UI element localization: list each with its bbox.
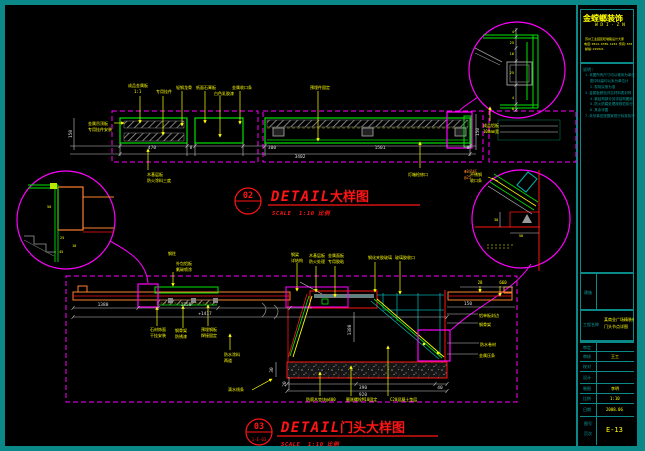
d2-label-l3-line2: 焊接固定 xyxy=(201,332,217,338)
d1-bottom-label-line1: 木基层板 xyxy=(147,171,163,177)
c2-dim-4: 45 xyxy=(59,250,63,254)
d2-dim-150: 150 xyxy=(464,301,472,307)
title-block-row-2: 审核 王工 xyxy=(580,351,634,361)
company-logo-sub: W D I · Z N xyxy=(595,23,625,28)
c1-dim-4: 25 xyxy=(510,71,514,75)
c1-label-line2: 100mm宽 xyxy=(483,128,499,134)
row-label: 设计 xyxy=(583,375,591,380)
title-block-discipline-cell: 建施 xyxy=(580,273,634,310)
d2-scale-value: 1:10 xyxy=(308,442,324,448)
row-label: 制图 xyxy=(583,386,591,391)
d2-dim-40: 40 xyxy=(437,385,443,391)
title-block-notes-box: 说明: 1.本图所有尺寸均以毫米为单位 图中标高均以米为单位计 2.现场实测为准… xyxy=(580,63,634,273)
d1-dim-1501: 1501 xyxy=(375,145,386,151)
d2-label-r1: 铝单板封边 xyxy=(479,312,499,318)
d1-scale-value: 1:10 xyxy=(299,211,315,217)
title-block-row-5: 制图 李明 xyxy=(580,383,634,393)
d2-bottom-label-1: 防腐木垫块@400 xyxy=(306,396,336,402)
note-line-3: 2.现场实测为准 xyxy=(590,85,640,90)
d2-dim-1417: +1417 xyxy=(198,311,212,317)
discipline-label: 建施 xyxy=(584,290,592,295)
d1-title-en: DETAIL xyxy=(270,189,331,205)
d1-top-label-7: 预埋件固定 xyxy=(310,84,330,90)
title-block-project-cell: 工程名称 某商业广场精装修工程 门头节点详图 xyxy=(580,310,634,341)
d1-scale-label: SCALE xyxy=(272,211,292,217)
c2-dim-1: 50 xyxy=(47,205,51,209)
d2-label-l4-line1: 防水涂料 xyxy=(224,351,240,357)
d2-label-l1-line1: 石材饰面 xyxy=(150,326,166,332)
d2-label-b-line2: 详结构 xyxy=(291,257,303,263)
d1-bottom-label-line2: 防火涂料三度 xyxy=(147,177,171,183)
row-value: 2008.06 xyxy=(606,407,623,412)
d2-label-l3-line1: 预埋钢板 xyxy=(201,326,217,332)
row-label: 比例 xyxy=(583,396,591,401)
d2-title-en: DETAIL xyxy=(280,420,341,436)
row-label: 审核 xyxy=(583,354,591,359)
title-block-row-3: 校对 xyxy=(580,361,634,371)
c2-dim-3: 10 xyxy=(72,244,76,248)
drawing-no-value: E-13 xyxy=(606,428,623,433)
d2-scale-cn: 比例 xyxy=(327,441,340,448)
d1-top-label-3: 轻钢龙骨 xyxy=(176,84,192,90)
d1-left-label-line2: 专用挂件安装 xyxy=(88,126,112,132)
row-value: 李明 xyxy=(611,386,619,391)
d2-dim-30: 30 xyxy=(269,367,275,373)
c3-dim-50: 50 xyxy=(519,234,523,238)
project-label: 工程名称 xyxy=(583,322,599,327)
d1-top-label-4: 纸面石膏板 xyxy=(196,84,216,90)
d2-label-l5: 滴水线条 xyxy=(228,386,244,392)
c3-label-line2: 收口条 xyxy=(470,177,482,183)
d2-title-cn: 门头大样图 xyxy=(340,420,405,436)
c1-label-line1: 成品铝板 xyxy=(483,122,499,128)
drawing-canvas: 成品金属板 1:1 专用挂件 轻钢龙骨 纸面石膏板 白色乳胶漆 金属收口条 预埋… xyxy=(0,0,645,451)
title-block-row-4: 设计 xyxy=(580,371,634,383)
note-line-8: 7.未尽事宜按国家现行标准执行 xyxy=(585,114,635,119)
d1-left-label-line1: 金属吊顶板 xyxy=(88,120,108,126)
title-block-divider-upper xyxy=(596,273,597,310)
title-block-logo-box: 金螳螂装饰 W D I · Z N 苏州工业园区旺墩路设计大厦 电话:0512-… xyxy=(580,9,634,63)
title-block-row-6: 比例 1:10 xyxy=(580,393,634,403)
d2-label-b-line1: 钢梁 xyxy=(291,251,299,257)
d1-dim-total: 3402 xyxy=(295,154,306,160)
d1-bubble-number: 02 xyxy=(243,191,253,201)
detail2-drawing xyxy=(66,261,517,402)
d1-top-label-2: 专用挂件 xyxy=(156,88,172,94)
c3-dim-30: 30 xyxy=(494,218,498,222)
d1-dim-8b: 8 xyxy=(467,145,470,151)
company-address-3: 邮编:215021 xyxy=(585,47,633,52)
d2-dim-20: 20 xyxy=(282,381,288,387)
d2-label-d-line2: 专用胶粘 xyxy=(328,258,344,264)
row-label: 审定 xyxy=(583,345,591,350)
d2-label-e: 钢化夹胶玻璃 xyxy=(368,254,392,260)
d1-top-label-1-sub: 1:1 xyxy=(134,89,142,94)
d2-dim-390: 390 xyxy=(359,385,367,391)
note-line-7: 6.其余详图 xyxy=(590,108,640,113)
c1-dim-3: 16 xyxy=(510,52,514,56)
drawing-no-label: 图号 xyxy=(584,421,592,426)
cad-sheet: 成品金属板 1:1 专用挂件 轻钢龙骨 纸面石膏板 白色乳胶漆 金属收口条 预埋… xyxy=(0,0,645,451)
d2-dim-920: 920 xyxy=(359,392,367,398)
d1-dim-8a: 8 xyxy=(190,145,193,151)
d2-label-l2-line1: 钢骨架 xyxy=(175,327,187,333)
d2-label-c-line1: 木基层板 xyxy=(309,252,325,258)
d2-label-r2: 钢骨架 xyxy=(479,321,491,327)
d2-dim-1350: 1350 xyxy=(181,302,192,308)
d1-top-label-1: 成品金属板 xyxy=(128,82,148,88)
c1-dim-1: 4 xyxy=(512,30,514,34)
title-block-row-7: 日期 2008.06 xyxy=(580,403,634,416)
d2-bottom-label-3: C20混凝土垫层 xyxy=(390,396,417,402)
company-address-1: 苏州工业园区旺墩路设计大厦 xyxy=(585,37,633,42)
circle2-detail xyxy=(17,171,148,283)
d1-dim-300: 300 xyxy=(268,145,276,151)
c2-dim-2: 25 xyxy=(60,236,64,240)
d2-label-l1-line2: 干挂安装 xyxy=(150,332,166,338)
project-value-2: 门头节点详图 xyxy=(604,324,628,329)
drawing-no-sub: 页次 xyxy=(584,431,592,436)
d2-dim-660: 660 xyxy=(499,280,507,285)
c1-dim-5: 4 xyxy=(512,96,514,100)
d1-top-label-6: 金属收口条 xyxy=(232,84,252,90)
d2-dim-28: 28 xyxy=(478,280,483,285)
d2-label-a2-line1: 外包铝板 xyxy=(176,260,192,266)
title-block-divider-rows xyxy=(596,341,597,445)
d1-bubble-sub: — xyxy=(247,206,250,211)
project-value-1: 某商业广场精装修工程 xyxy=(604,317,634,322)
d2-label-r4: 金属压条 xyxy=(479,352,495,358)
title-block-row-drawing-no: 图号 页次 E-13 xyxy=(580,416,634,445)
d2-dim-1380: 1380 xyxy=(98,302,109,308)
d1-mid-label: 灯箱检修口 xyxy=(408,171,428,177)
detail1-drawing xyxy=(70,91,576,170)
c1-dim-2: 25 xyxy=(510,41,514,45)
d2-label-l4-line2: 两道 xyxy=(224,357,232,363)
company-address-2: 电话:0512-6789-1234 传真:6789-1235 xyxy=(584,42,632,47)
row-label: 校对 xyxy=(583,364,591,369)
title-block-row-1: 审定 xyxy=(580,341,634,351)
d2-bubble-sub: 1-E-03 xyxy=(252,437,267,442)
d2-label-a2-line2: 氟碳喷涂 xyxy=(176,266,192,272)
d2-dim-v1380: 1380 xyxy=(347,324,353,335)
d1-dim-470: 470 xyxy=(148,145,156,151)
d2-label-a1: 钢柱 xyxy=(168,250,176,256)
d2-label-c-line2: 防火处理 xyxy=(309,258,325,264)
d1-dim-150-left: 150 xyxy=(68,130,74,138)
d1-title-cn: 大样图 xyxy=(330,189,369,205)
d1-dim-150-right: 150 xyxy=(475,128,481,136)
d2-scale-label: SCALE xyxy=(281,442,301,448)
d2-label-d-line1: 金属面板 xyxy=(328,252,344,258)
row-label: 日期 xyxy=(583,407,591,412)
d2-bubble-number: 03 xyxy=(254,422,264,432)
row-value: 王工 xyxy=(611,354,619,359)
note-line-2: 图中标高均以米为单位计 xyxy=(590,79,640,84)
c1-dim-6: 8 xyxy=(512,107,514,111)
sheet-border xyxy=(0,0,645,451)
row-value: 1:10 xyxy=(610,396,620,401)
d1-scale-cn: 比例 xyxy=(318,210,331,217)
c3-label-line1: 不锈钢 xyxy=(470,171,482,177)
d2-label-l2-line2: 防锈漆 xyxy=(175,333,187,339)
d2-label-f: 玻璃胶收口 xyxy=(395,254,415,260)
notes-title: 说明: xyxy=(583,67,593,72)
d2-label-r3: 防水卷材 xyxy=(480,341,496,347)
d1-top-label-5: 白色乳胶漆 xyxy=(214,90,234,96)
